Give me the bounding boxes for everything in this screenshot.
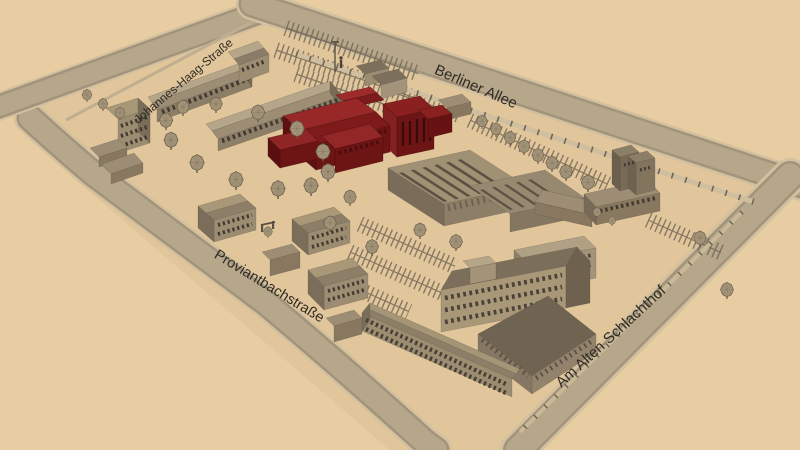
person-figure xyxy=(339,56,342,68)
site-plan-3d: Johannes-Haag-Straße Berliner Allee Prov… xyxy=(0,0,800,450)
tower-building xyxy=(612,145,655,195)
